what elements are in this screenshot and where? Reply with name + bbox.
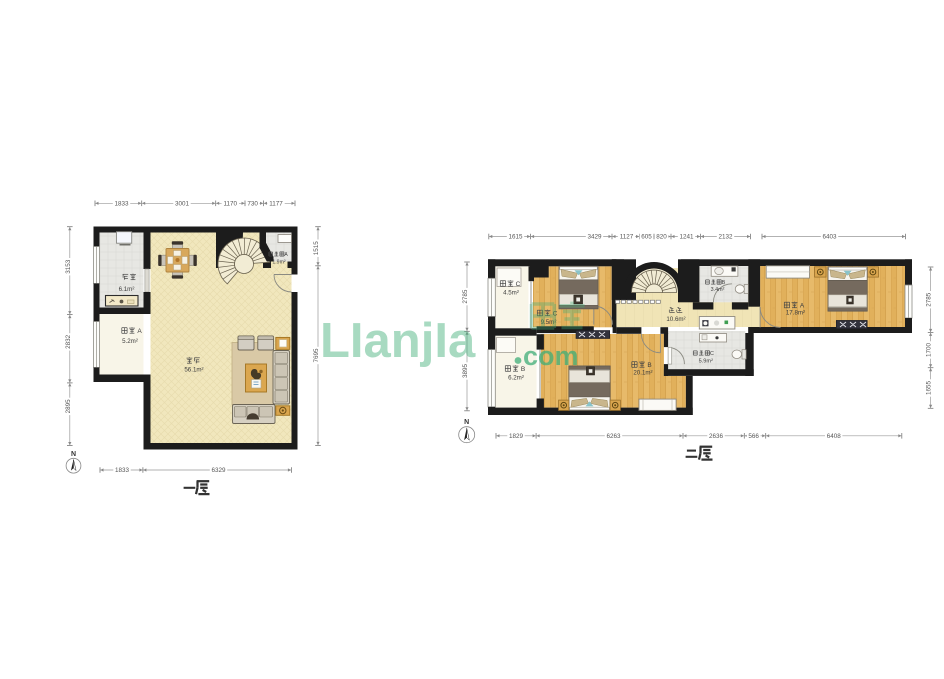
svg-text:6263: 6263: [606, 433, 621, 440]
svg-text:5.9m²: 5.9m²: [699, 359, 713, 365]
svg-text:1177: 1177: [269, 201, 283, 208]
svg-text:3.4m²: 3.4m²: [711, 287, 725, 293]
svg-text:1127: 1127: [620, 234, 634, 241]
svg-text:1.9m²: 1.9m²: [272, 260, 286, 266]
svg-text:2832: 2832: [65, 334, 72, 349]
svg-text:605: 605: [641, 234, 652, 241]
svg-text:2895: 2895: [65, 399, 72, 414]
svg-text:2785: 2785: [462, 289, 469, 304]
svg-text:3429: 3429: [587, 234, 602, 241]
svg-text:2132: 2132: [718, 234, 733, 241]
svg-text:820: 820: [656, 234, 667, 241]
svg-text:5.2m²: 5.2m²: [122, 338, 138, 345]
svg-text:6.2m²: 6.2m²: [508, 375, 524, 382]
svg-text:N: N: [464, 419, 469, 426]
svg-text:6403: 6403: [822, 234, 837, 241]
svg-text:17.8m²: 17.8m²: [786, 310, 805, 317]
svg-text:2785: 2785: [926, 292, 933, 307]
svg-text:2636: 2636: [709, 433, 724, 440]
svg-text:C: C: [710, 351, 714, 357]
svg-text:A: A: [137, 328, 142, 335]
svg-text:6329: 6329: [211, 467, 226, 474]
svg-text:1515: 1515: [313, 241, 320, 256]
svg-text:566: 566: [748, 433, 759, 440]
svg-text:10.6m²: 10.6m²: [666, 316, 685, 323]
svg-text:B: B: [722, 280, 726, 286]
svg-text:N: N: [71, 451, 76, 458]
svg-text:1829: 1829: [509, 433, 524, 440]
svg-text:6.1m²: 6.1m²: [119, 286, 135, 293]
svg-text:B: B: [647, 362, 651, 369]
svg-text:3153: 3153: [65, 259, 72, 274]
svg-text:C: C: [516, 281, 521, 288]
svg-text:1655: 1655: [926, 381, 933, 396]
svg-text:1833: 1833: [114, 201, 129, 208]
svg-text:1170: 1170: [224, 201, 238, 208]
svg-text:com: com: [523, 341, 579, 371]
svg-text:A: A: [800, 303, 805, 310]
svg-text:1833: 1833: [115, 467, 130, 474]
svg-text:7695: 7695: [313, 348, 320, 363]
svg-text:20.1m²: 20.1m²: [633, 370, 652, 377]
svg-text:3001: 3001: [175, 201, 190, 208]
svg-text:730: 730: [247, 201, 258, 208]
svg-text:4.5m²: 4.5m²: [503, 290, 519, 297]
svg-text:1241: 1241: [679, 234, 694, 241]
svg-text:56.1m²: 56.1m²: [184, 367, 203, 374]
svg-text:6408: 6408: [827, 433, 842, 440]
svg-text:LIanjIa: LIanjIa: [320, 314, 476, 368]
svg-text:1615: 1615: [508, 234, 523, 241]
svg-text:1700: 1700: [926, 343, 933, 358]
